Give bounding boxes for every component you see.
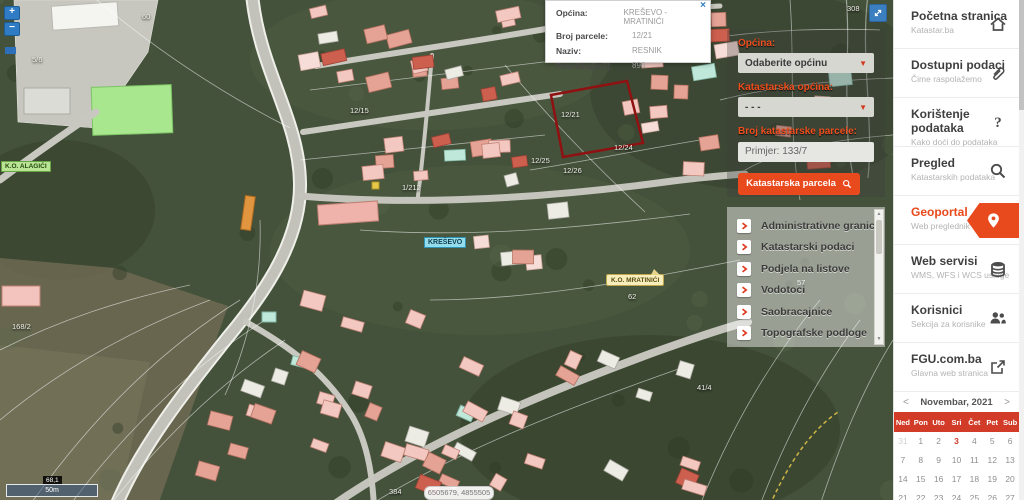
scale-bar: 50m [6,484,98,497]
calendar-title: Novembar, 2021 [920,397,992,408]
parcel-number-label: 384 [389,487,402,496]
cadastral-municipality-select[interactable]: - - - ▼ [738,97,874,117]
calendar-date-cell[interactable]: 12 [983,451,1001,470]
calendar-date-cell[interactable]: 14 [894,470,912,489]
municipality-label: Općina: [738,38,874,49]
parcel-number-label: 12/21 [561,110,580,119]
stack-icon [989,260,1007,278]
chevron-right-icon [737,219,751,233]
magnifier-icon [989,162,1007,180]
popup-row-value: 896 [632,61,645,71]
calendar-day-name: Sub [1001,418,1019,427]
parcel-number-label: Broj katastarske parcele: [738,126,874,137]
scroll-down-icon[interactable]: ▼ [875,335,883,344]
calendar-week-row: 31123456 [894,432,1019,451]
popup-row-value: 12/21 [632,31,652,41]
layers-panel: Administrativne granice Katastarski poda… [727,207,885,347]
calendar-date-cell[interactable]: 7 [894,451,912,470]
popup-row-label: Općina: [556,8,624,26]
calendar-day-name: Pon [912,418,930,427]
map-zoom-controls: + − [4,6,20,38]
calendar-date-cell[interactable]: 13 [1001,451,1019,470]
sidebar-item-kori-tenje-podataka[interactable]: Korištenje podataka Kako doći do podatak… [894,98,1019,147]
layer-group-item[interactable]: Saobracajnice [737,301,885,323]
calendar-date-cell[interactable]: 31 [894,432,912,451]
parcel-search-button[interactable]: Katastarska parcela [738,173,860,195]
sidebar-item-dostupni-podaci[interactable]: Dostupni podaci Čime raspolažemo [894,49,1019,98]
sidebar-item-geoportal[interactable]: Geoportal Web preglednik [894,196,1019,245]
layer-group-label: Topografske podloge [761,327,867,339]
calendar-date-cell[interactable]: 25 [965,489,983,500]
calendar-week-row: 14151617181920 [894,470,1019,489]
calendar-date-cell[interactable]: 23 [930,489,948,500]
calendar-day-name: Sri [948,418,966,427]
zoom-out-button[interactable]: − [4,22,20,36]
sidebar-item-po-etna-stranica[interactable]: Početna stranica Katastar.ba [894,0,1019,49]
chevron-right-icon [737,262,751,276]
chevron-right-icon [737,283,751,297]
calendar-date-cell[interactable]: 6 [1001,432,1019,451]
right-sidebar: Početna stranica Katastar.ba Dostupni po… [893,0,1019,500]
calendar-day-name: Uto [930,418,948,427]
calendar-date-cell[interactable]: 8 [912,451,930,470]
parcel-search-button-label: Katastarska parcela [746,178,836,189]
home-icon [989,15,1007,33]
calendar-date-cell[interactable]: 15 [912,470,930,489]
coordinates-readout: 6505679, 4855505 [424,486,494,500]
parcel-number-input[interactable] [738,142,874,162]
popup-row-value: RESNIK [632,46,662,56]
layers-panel-scrollbar[interactable]: ▲ ▼ [874,209,884,345]
parcel-number-label: 12/15 [350,106,369,115]
location-pin-icon [985,212,1002,229]
calendar-date-cell[interactable]: 3 [948,432,966,451]
chevron-right-icon [737,240,751,254]
calendar-day-name: Ned [894,418,912,427]
popup-info-row: Površina[m2]: 896 [556,61,700,71]
calendar-date-cell[interactable]: 22 [912,489,930,500]
cadastral-select-value: - - - [745,102,761,113]
calendar-date-cell[interactable]: 1 [912,432,930,451]
parcel-number-label: 1/212 [402,183,421,192]
layer-group-item[interactable]: Topografske podloge [737,323,885,345]
calendar-date-cell[interactable]: 18 [965,470,983,489]
municipality-select[interactable]: Odaberite općinu ▼ [738,53,874,73]
geoportal-app: 605/630812/1512/2112/2412/2612/251/21216… [0,0,1024,500]
calendar-week-row: 78910111213 [894,451,1019,470]
chevron-down-icon: ▼ [859,59,867,68]
calendar-date-cell[interactable]: 24 [948,489,966,500]
cadastral-municipality-label: Katastarska općina: [738,82,874,93]
layer-group-label: Administrativne granice [761,220,881,232]
layer-group-item[interactable]: Podjela na listove [737,258,885,280]
parcel-number-label: 12/24 [614,143,633,152]
parcel-number-label: 5/6 [32,55,42,64]
calendar-week-row: 21222324252627 [894,489,1019,500]
layers-scrollbar-thumb[interactable] [876,220,882,254]
users-icon [989,309,1007,327]
layer-group-label: Podjela na listove [761,263,850,275]
popup-info-row: Naziv: RESNIK [556,46,700,56]
calendar-date-cell[interactable]: 2 [930,432,948,451]
scroll-up-icon[interactable]: ▲ [875,210,883,219]
layer-group-item[interactable]: Administrativne granice [737,215,885,237]
popup-row-value: KREŠEVO - MRATINIĆI [624,8,700,26]
popup-info-row: Općina: KREŠEVO - MRATINIĆI [556,8,700,26]
calendar-date-cell[interactable]: 10 [948,451,966,470]
calendar-date-cell[interactable]: 26 [983,489,1001,500]
calendar-date-cell[interactable]: 16 [930,470,948,489]
calendar-date-cell[interactable]: 19 [983,470,1001,489]
page-scrollbar[interactable] [1019,0,1024,500]
calendar-date-cell[interactable]: 21 [894,489,912,500]
calendar-date-cell[interactable]: 11 [965,451,983,470]
popup-row-label: Naziv: [556,46,632,56]
calendar-next-button[interactable]: > [1004,397,1010,408]
parcel-number-label: 62 [628,292,636,301]
popup-close-icon[interactable]: × [700,1,706,11]
page-scrollbar-thumb[interactable] [1019,0,1024,110]
expand-arrows-icon [872,7,884,19]
calendar-day-name: Čet [965,418,983,427]
calendar-date-cell[interactable]: 20 [1001,470,1019,489]
sidebar-item-fgu-com-ba[interactable]: FGU.com.ba Glavna web stranica [894,343,1019,392]
calendar-date-cell[interactable]: 5 [983,432,1001,451]
popup-row-label: Površina[m2]: [556,61,632,71]
chevron-right-icon [737,305,751,319]
external-icon [989,358,1007,376]
municipality-select-value: Odaberite općinu [745,58,827,69]
parcel-number-label: 12/25 [531,156,550,165]
cadastral-municipality-label-left: K.O. ALAGIĆI [1,161,51,172]
sidebar-item-web-servisi[interactable]: Web servisi WMS, WFS i WCS usluge [894,245,1019,294]
calendar-prev-button[interactable]: < [903,397,909,408]
calendar-day-name: Pet [983,418,1001,427]
layer-group-item[interactable]: Katastarski podaci [737,237,885,259]
calendar-date-cell[interactable]: 27 [1001,489,1019,500]
parcel-number-label: 308 [847,4,860,13]
calendar-widget: < Novembar, 2021 > NedPonUtoSriČetPetSub… [894,392,1019,500]
popup-info-row: Broj parcele: 12/21 [556,31,700,41]
popup-row-label: Broj parcele: [556,31,632,41]
sidebar-item-korisnici[interactable]: Korisnici Sekcija za korisnike [894,294,1019,343]
calendar-date-cell[interactable]: 17 [948,470,966,489]
parcel-number-label: 41/4 [697,383,712,392]
map-canvas[interactable]: 605/630812/1512/2112/2412/2612/251/21216… [0,0,893,500]
sidebar-item-pregled[interactable]: Pregled Katastarskih podataka [894,147,1019,196]
place-label-kresevo: KREŠEVO [424,237,466,248]
parcel-search-panel: Općina: Odaberite općinu ▼ Katastarska o… [727,30,885,197]
svg-text:?: ? [994,115,1002,131]
sidebar-item-subtitle: Kako doći do podataka [911,137,1019,147]
calendar-day-names: NedPonUtoSriČetPetSub [894,412,1019,432]
layer-group-label: Vodotoci [761,284,805,296]
layer-group-label: Saobracajnice [761,306,832,318]
question-icon: ? [989,113,1007,131]
chevron-right-icon [737,326,751,340]
chevron-down-icon: ▼ [859,103,867,112]
zoom-in-button[interactable]: + [4,6,20,20]
parcel-number-label: 12/26 [563,166,582,175]
calendar-date-cell[interactable]: 4 [965,432,983,451]
search-icon [842,179,852,189]
calendar-date-cell[interactable]: 9 [930,451,948,470]
parcel-info-popup: × Općina: KREŠEVO - MRATINIĆI Broj parce… [545,0,711,63]
parcel-number-label: 60 [142,12,150,21]
cadastral-municipality-balloon: K.O. MRATINIĆI [606,274,664,286]
layer-group-item[interactable]: Vodotoci [737,280,885,302]
parcel-number-label: 168/2 [12,322,31,331]
fullscreen-button[interactable] [869,4,887,22]
layer-group-label: Katastarski podaci [761,241,854,253]
paperclip-icon [989,64,1007,82]
